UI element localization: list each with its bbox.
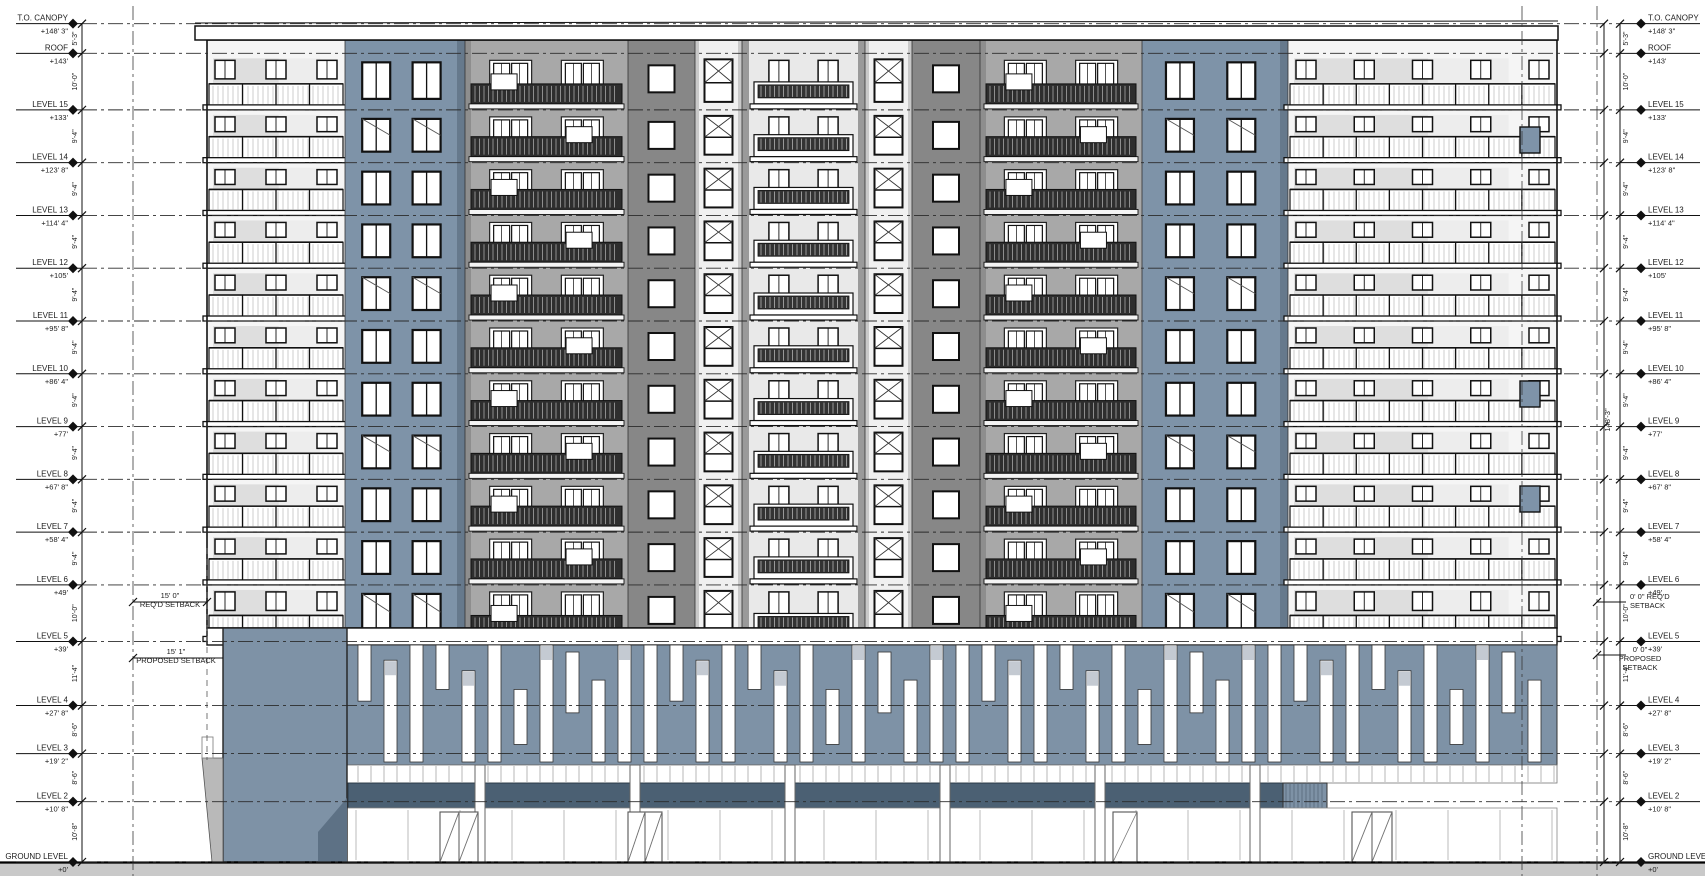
balcony-slab [750,579,857,584]
balcony-slab [750,262,857,267]
tall-window [705,538,733,577]
balcony-railing-dark [986,453,1136,473]
level-elev-right: +77' [1648,430,1663,439]
fin-shade [775,672,786,686]
tall-window [875,116,903,155]
shading [1428,58,1509,83]
level-elev-left: +39' [54,644,69,653]
dark-band [348,783,1327,808]
level-elev-right: +86' 4" [1648,377,1671,386]
floor-dim-right: 9'-4" [1623,498,1630,512]
setback-left-reqd: 15' 0" [161,591,180,600]
level-elev-left: +0' [58,865,69,874]
balcony-slab [984,579,1138,584]
window [933,227,959,254]
zone-blue [345,40,465,630]
balcony-slab [984,421,1138,426]
window [933,386,959,413]
balcony-slab [750,473,857,478]
balcony-slab [1284,580,1561,585]
level-elev-left: +133' [50,113,69,122]
white-box [491,391,517,407]
level-name-right: LEVEL 10 [1648,364,1684,373]
screen-fin [1346,645,1359,762]
balcony-railing-dark [471,453,622,473]
shading [1428,273,1509,294]
canopy-slab [195,26,1558,40]
level-elev-right: +10' 8" [1648,805,1671,814]
tall-window [875,221,903,260]
balcony-slab [469,209,624,214]
shading [1428,220,1509,241]
floor-dim-right: 10'-0" [1623,72,1630,90]
floor-dim-left: 11'-4" [72,664,79,682]
shading [980,40,986,628]
balcony-railing-dark [986,137,1136,157]
balcony-railing-dark [758,243,849,256]
screen-fin [696,660,709,762]
level-elev-left: +49' [54,588,69,597]
window [649,597,675,624]
balcony-slab [469,157,624,162]
balcony-slab [203,369,349,374]
white-box [1080,338,1106,354]
screen-fin [930,645,943,762]
level-name-left: LEVEL 12 [32,258,68,267]
screen-fin [1320,660,1333,762]
tall-window [705,485,733,524]
level-elev-right: +123' 8" [1648,166,1676,175]
window [933,597,959,624]
pier [1250,765,1260,862]
shading [465,40,471,628]
level-name-left: LEVEL 8 [37,469,69,478]
screen-fin [722,645,735,762]
floor-dim-right: 8'-6" [1623,722,1630,736]
balcony-slab [984,209,1138,214]
balcony-slab [750,526,857,531]
screen-fin [826,689,839,744]
ramp-wedge [202,758,223,862]
shading [1280,40,1288,628]
screen-fin [1372,645,1385,689]
window [933,280,959,307]
window [649,122,675,149]
level-name-left: LEVEL 13 [32,205,68,214]
screen-fin [904,680,917,762]
level-name-left: LEVEL 11 [33,311,69,320]
level-elev-right: +19' 2" [1648,757,1671,766]
balcony-railing-dark [471,348,622,368]
balcony-slab [1284,474,1561,479]
fin-shade [1321,661,1332,675]
balcony-slab [469,315,624,320]
shading [1428,590,1509,615]
window [933,175,959,202]
level-name-left: LEVEL 4 [37,696,69,705]
setback-left-reqd: REQ'D SETBACK [140,600,200,609]
floor-dim-right: 9'-4" [1623,234,1630,248]
level-name-left: LEVEL 2 [37,792,69,801]
balcony-railing-dark [758,138,849,151]
level-name-left: LEVEL 7 [37,522,69,531]
balcony-railing-dark [758,560,849,573]
floor-dim-right: 9'-4" [1623,287,1630,301]
floor-dim-left: 9'-4" [72,393,79,407]
floor-dim-right: 9'-4" [1623,393,1630,407]
balcony-railing-dark [986,559,1136,579]
balcony-slab [1284,105,1561,110]
floor-dim-left: 5'-3" [72,31,79,45]
balcony-slab [984,473,1138,478]
tall-window [875,538,903,577]
zone-balcony-wing [203,40,349,641]
floor-dim-left: 10'-8" [72,822,79,840]
white-box [566,232,592,248]
screen-fin [592,680,605,762]
balcony-slab [750,209,857,214]
level-elev-right: +133' [1648,113,1667,122]
floor-dim-right: 5'-3" [1623,31,1630,45]
floor-dim-left: 8'-6" [72,770,79,784]
shading [1428,326,1509,347]
balcony-slab [203,474,349,479]
balcony-slab [203,263,349,268]
floor-dim-left: 9'-4" [72,445,79,459]
level-name-left: LEVEL 5 [37,631,69,640]
balcony-slab [1284,369,1561,374]
tall-window [875,485,903,524]
window [649,227,675,254]
screen-fin [1190,652,1203,713]
floor-dim-left: 9'-4" [72,498,79,512]
balcony-slab [750,315,857,320]
screen-fin [1502,652,1515,713]
balcony-railing-dark [986,242,1136,262]
level-name-left: LEVEL 3 [37,744,69,753]
balcony-slab [203,210,349,215]
floor-dim-left: 9'-4" [72,129,79,143]
balcony-slab [1284,158,1561,163]
balcony-slab [469,262,624,267]
level-elev-left: +86' 4" [45,377,68,386]
screen-fin [1268,645,1281,762]
setback-right-reqd: SETBACK [1630,601,1665,610]
balcony-railing-dark [758,507,849,520]
level-name-right: GROUND LEVEL [1648,852,1705,861]
tall-window [875,274,903,313]
level-name-left: ROOF [45,43,68,52]
screen-fin [358,645,371,701]
floor-dim-right: 9'-4" [1623,129,1630,143]
white-box [566,443,592,459]
screen-fin [1138,689,1151,744]
screen-fin [1216,680,1229,762]
level-name-right: LEVEL 11 [1648,311,1684,320]
balcony-slab [984,368,1138,373]
zone-darkgray [628,40,695,628]
fin-shade [1009,661,1020,675]
screen-fin [644,645,657,762]
level-elev-right: +39' [1648,644,1663,653]
balcony-slab [469,473,624,478]
fin-shade [931,646,942,660]
zone-white-strip [695,40,742,633]
window [933,491,959,518]
white-box [566,338,592,354]
balcony-railing-dark [758,349,849,362]
level-elev-right: +95' 8" [1648,324,1671,333]
level-elev-left: +58' 4" [45,535,68,544]
screen-fin [436,645,449,689]
level-elev-left: +19' 2" [45,757,68,766]
level-elev-right: +143' [1648,56,1667,65]
floor-dim-left: 10'-0" [72,72,79,90]
balcony-railing-dark [758,296,849,309]
fin-shade [385,661,396,675]
tall-window [705,116,733,155]
tall-window [875,380,903,419]
screen-fin [1034,645,1047,762]
screen-fin [878,652,891,713]
balcony-railing-dark [471,242,622,262]
zone-gray [980,40,1142,640]
balcony-railing-dark [471,559,622,579]
white-box [1006,391,1032,407]
floor-dim-right: 9'-4" [1623,340,1630,354]
level-elev-left: +143' [50,56,69,65]
screen-fin [1164,645,1177,762]
balcony-slab [203,580,349,585]
fin-shade [541,646,552,660]
floor-dim-left: 9'-4" [72,234,79,248]
screen-fin [982,645,995,701]
screen-fin [1242,645,1255,762]
level-elev-left: +67' 8" [45,482,68,491]
tall-window [875,591,903,634]
podium [202,628,1557,862]
floor-dim-right: 8'-6" [1623,770,1630,784]
white-box [491,605,517,621]
screen-fin [1112,645,1125,762]
white-box [566,549,592,565]
screen-fin [384,660,397,762]
balcony-slab [984,315,1138,320]
tall-window [705,274,733,313]
tall-window [705,591,733,634]
window [933,439,959,466]
floor-dim-right: 9'-4" [1623,182,1630,196]
white-box [491,496,517,512]
window [649,386,675,413]
screen-fin [1060,645,1073,689]
level-name-right: ROOF [1648,43,1671,52]
balcony-slab [1284,422,1561,427]
screen-fin [1528,680,1541,762]
tall-window [705,169,733,208]
white-box [1006,496,1032,512]
zone-white-strip [865,40,912,633]
floor-dim-left: 9'-4" [72,340,79,354]
level-name-right: LEVEL 15 [1648,100,1684,109]
zone-gray [465,40,628,640]
screen-fin [514,689,527,744]
screen-fin [852,645,865,762]
zone-darkgray [912,40,980,628]
shading [908,40,912,628]
elevation-svg: T.O. CANOPY+148' 3"T.O. CANOPY+148' 3"5'… [0,0,1705,876]
level-name-right: LEVEL 13 [1648,205,1684,214]
shading [1428,168,1509,189]
white-box [1006,179,1032,195]
level-name-right: LEVEL 4 [1648,696,1680,705]
white-box [1080,232,1106,248]
balcony-slab [750,368,857,373]
tall-window [875,433,903,472]
balcony-slab [750,104,857,109]
balcony-slab [203,527,349,532]
pier [785,765,795,862]
level-elev-right: +114' 4" [1648,218,1675,227]
window [933,122,959,149]
facade-panel [1142,40,1288,628]
balcony-slab [203,158,349,163]
white-box [491,179,517,195]
shading [1428,115,1509,136]
balcony-slab [1284,316,1561,321]
white-box [1080,443,1106,459]
floor-dim-right: 9'-4" [1623,445,1630,459]
ground-strip [0,863,1705,876]
balcony-railing-dark [758,402,849,415]
setback-right-reqd: 0' 0" REQ'D [1630,592,1670,601]
white-box [566,127,592,143]
screen-fin [1450,689,1463,744]
window [933,65,959,92]
canopy-edge [195,21,1558,23]
balcony-slab [750,157,857,162]
fin-shade [463,672,474,686]
level-elev-left: +123' 8" [41,166,69,175]
balcony-slab [984,157,1138,162]
pier [742,40,749,628]
setback-right-proposed: PROPOSED [1619,654,1662,663]
balcony-railing-dark [758,85,849,98]
white-box [1006,74,1032,90]
window [649,544,675,571]
floor-dim-left: 8'-6" [72,722,79,736]
level-name-right: LEVEL 9 [1648,417,1680,426]
level-elev-left: +105' [50,271,69,280]
level-name-right: LEVEL 6 [1648,575,1680,584]
level-elev-right: +105' [1648,271,1667,280]
balcony-slab [984,526,1138,531]
screen-fin [488,645,501,762]
level-name-right: LEVEL 7 [1648,522,1680,531]
balcony-slab [750,421,857,426]
building-facade [203,40,1561,641]
fin-shade [697,661,708,675]
shading [865,40,869,628]
tall-window [875,169,903,208]
blue-accent-window [1520,381,1540,407]
floor-dim-right: 9'-4" [1623,551,1630,565]
level-name-right: LEVEL 5 [1648,631,1680,640]
floor-dim-left: 9'-4" [72,287,79,301]
screen-fin [748,645,761,689]
level-name-right: LEVEL 3 [1648,744,1680,753]
pier [940,765,950,862]
screen-fin [1424,645,1437,762]
level-name-left: LEVEL 15 [32,100,68,109]
window [649,65,675,92]
screen-fin [1008,660,1021,762]
shading [457,40,465,628]
tall-window [705,221,733,260]
white-box [1006,285,1032,301]
blue-accent-window [1520,127,1540,153]
level-name-left: GROUND LEVEL [5,852,68,861]
balcony-railing-dark [758,190,849,203]
screen-fin [566,652,579,713]
window [649,491,675,518]
window [649,439,675,466]
white-box [491,74,517,90]
pier [1095,765,1105,862]
level-elev-right: +67' 8" [1648,482,1671,491]
floor-dim-left: 10'-0" [72,604,79,622]
balcony-slab [203,422,349,427]
tall-window [875,327,903,366]
fin-shade [1087,672,1098,686]
fin-shade [1477,646,1488,660]
tall-window [875,59,903,102]
level-elev-left: +148' 3" [41,27,69,36]
setback-right-proposed: 0' 0" [1633,645,1648,654]
level-name-left: T.O. CANOPY [17,14,68,23]
blue-accent-window [1520,486,1540,512]
fin-shade [1399,672,1410,686]
screen-fin [540,645,553,762]
balcony-slab [1284,527,1561,532]
balcony-slab [1284,210,1561,215]
balcony-slab [469,368,624,373]
fin-shade [1165,646,1176,660]
window [649,280,675,307]
shading [695,40,699,628]
window [933,333,959,360]
balcony-slab [469,526,624,531]
level-name-left: LEVEL 6 [37,575,69,584]
balcony-slab [469,104,624,109]
screen-fin [1294,645,1307,701]
elevation-drawing: T.O. CANOPY+148' 3"T.O. CANOPY+148' 3"5'… [0,0,1705,876]
setback-left-proposed: 15' 1" [167,647,186,656]
level-elev-left: +77' [54,430,69,439]
screen-fin [800,645,813,762]
balcony-slab [203,105,349,110]
fin-shade [853,646,864,660]
screen-fin [670,645,683,701]
screen-fin [1476,645,1489,762]
shading [1428,537,1509,558]
level-name-right: T.O. CANOPY [1648,14,1699,23]
balcony-railing-dark [471,137,622,157]
balcony-railing-dark [986,348,1136,368]
level-name-left: LEVEL 10 [32,364,68,373]
overall-height-dim: 148'-3" [1603,408,1612,432]
fin-shade [619,646,630,660]
